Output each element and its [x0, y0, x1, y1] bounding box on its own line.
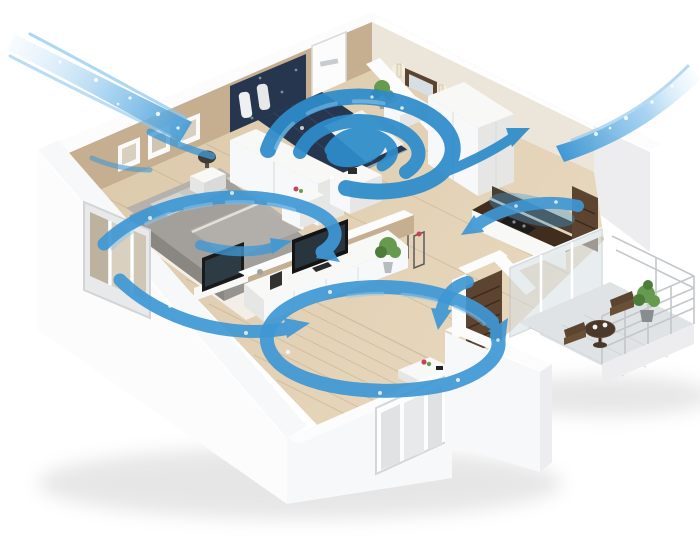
coffee-machine — [348, 168, 357, 174]
cup — [593, 325, 598, 330]
cup — [603, 323, 608, 328]
apartment-airflow-illustration — [0, 0, 700, 550]
vase — [257, 269, 263, 275]
illustration-canvas — [0, 0, 700, 550]
flower — [294, 187, 299, 192]
remote — [436, 366, 443, 370]
flowers — [421, 359, 426, 364]
